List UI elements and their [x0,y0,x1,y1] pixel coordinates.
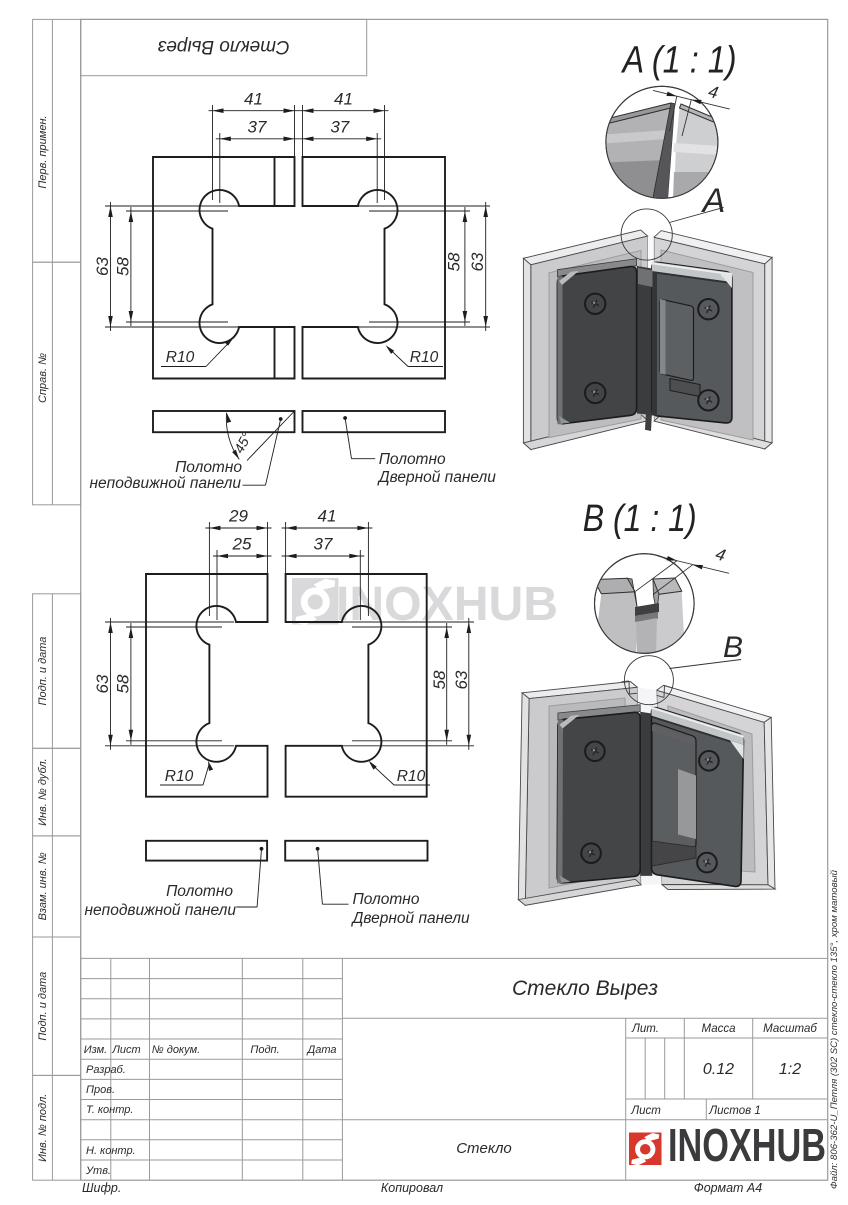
svg-text:Дверной панели: Дверной панели [351,910,471,927]
svg-text:37: 37 [314,535,333,554]
svg-text:R10: R10 [410,349,439,366]
svg-text:Изм.: Изм. [84,1044,107,1056]
svg-text:58: 58 [430,670,449,689]
svg-text:A: A [701,182,726,220]
svg-text:Пров.: Пров. [86,1084,115,1096]
svg-text:неподвижной панели: неподвижной панели [85,902,237,919]
svg-text:58: 58 [445,252,464,271]
svg-text:63: 63 [452,670,471,689]
svg-text:Лист: Лист [111,1044,140,1056]
svg-text:Справ. №: Справ. № [37,353,49,403]
svg-text:Подп. и дата: Подп. и дата [37,972,49,1041]
svg-text:R10: R10 [397,768,426,785]
svg-text:A (1 : 1): A (1 : 1) [621,40,737,82]
svg-text:Подп. и дата: Подп. и дата [37,637,49,706]
svg-text:Т. контр.: Т. контр. [86,1104,133,1116]
svg-text:Взам. инв. №: Взам. инв. № [37,852,49,920]
svg-text:41: 41 [318,507,337,526]
svg-text:Разраб.: Разраб. [86,1064,126,1076]
svg-text:B (1 : 1): B (1 : 1) [583,498,697,540]
svg-text:R10: R10 [165,768,194,785]
svg-text:неподвижной панели: неподвижной панели [90,475,242,492]
svg-text:R10: R10 [166,349,195,366]
svg-text:1:2: 1:2 [779,1061,801,1078]
svg-text:Шифр.: Шифр. [82,1181,121,1195]
svg-text:Стекло: Стекло [456,1140,512,1157]
svg-text:Дата: Дата [305,1044,336,1056]
svg-text:№ докум.: № докум. [152,1044,200,1056]
svg-text:INOXHUB: INOXHUB [668,1119,826,1171]
svg-text:Полотно: Полотно [175,459,242,476]
svg-text:Масштаб: Масштаб [763,1023,817,1035]
svg-text:B: B [723,631,743,664]
svg-text:Дверной панели: Дверной панели [377,469,497,486]
svg-text:Файл: 806-362-U_Петля (302 SC): Файл: 806-362-U_Петля (302 SC) стекло-ст… [829,869,840,1189]
svg-text:Полотно: Полотно [379,451,446,468]
svg-text:37: 37 [248,118,267,137]
svg-text:Инв. № подл.: Инв. № подл. [37,1094,49,1162]
svg-text:Копировал: Копировал [381,1181,443,1195]
svg-text:Подп.: Подп. [250,1044,279,1056]
svg-text:0.12: 0.12 [703,1061,734,1078]
svg-text:37: 37 [330,118,349,137]
svg-text:25: 25 [232,535,252,554]
svg-text:Инв. № дубл.: Инв. № дубл. [37,758,49,826]
svg-text:Перв. примен.: Перв. примен. [37,115,49,188]
svg-text:Листов 1: Листов 1 [708,1105,760,1117]
svg-text:Лист: Лист [630,1105,661,1117]
svg-text:Лит.: Лит. [631,1023,659,1035]
svg-text:Полотно: Полотно [166,883,233,900]
svg-text:Масса: Масса [701,1023,735,1035]
svg-text:Н. контр.: Н. контр. [86,1145,136,1157]
svg-text:29: 29 [228,507,248,526]
svg-text:63: 63 [468,252,487,271]
svg-text:63: 63 [93,257,112,276]
svg-text:Стекло Вырез: Стекло Вырез [512,977,658,1000]
svg-text:58: 58 [114,674,133,693]
svg-text:58: 58 [114,257,133,276]
svg-text:Утв.: Утв. [85,1165,111,1177]
svg-text:Формат А4: Формат А4 [694,1181,762,1195]
svg-text:63: 63 [93,674,112,693]
svg-text:Полотно: Полотно [353,891,420,908]
svg-text:41: 41 [334,90,353,109]
svg-text:41: 41 [244,90,263,109]
svg-text:Стекло Вырез: Стекло Вырез [158,36,290,57]
